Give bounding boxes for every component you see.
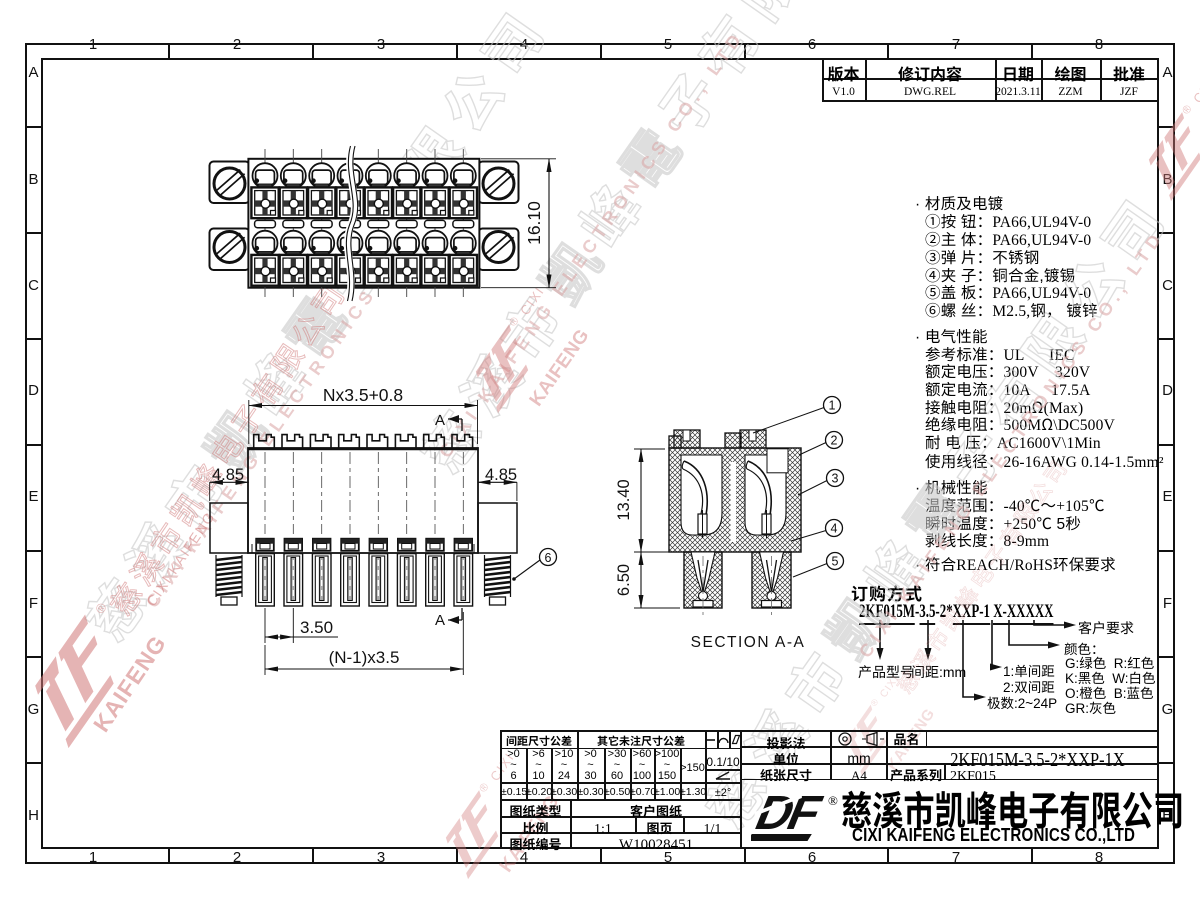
svg-text:4: 4 bbox=[831, 522, 838, 536]
svg-text:2: 2 bbox=[831, 434, 838, 448]
svg-text:1: 1 bbox=[829, 399, 836, 413]
svg-text:13.40: 13.40 bbox=[615, 479, 633, 520]
svg-text:5: 5 bbox=[832, 555, 839, 569]
svg-text:3: 3 bbox=[832, 472, 839, 486]
svg-text:SECTION A-A: SECTION A-A bbox=[691, 634, 806, 651]
svg-text:6.50: 6.50 bbox=[615, 564, 633, 596]
